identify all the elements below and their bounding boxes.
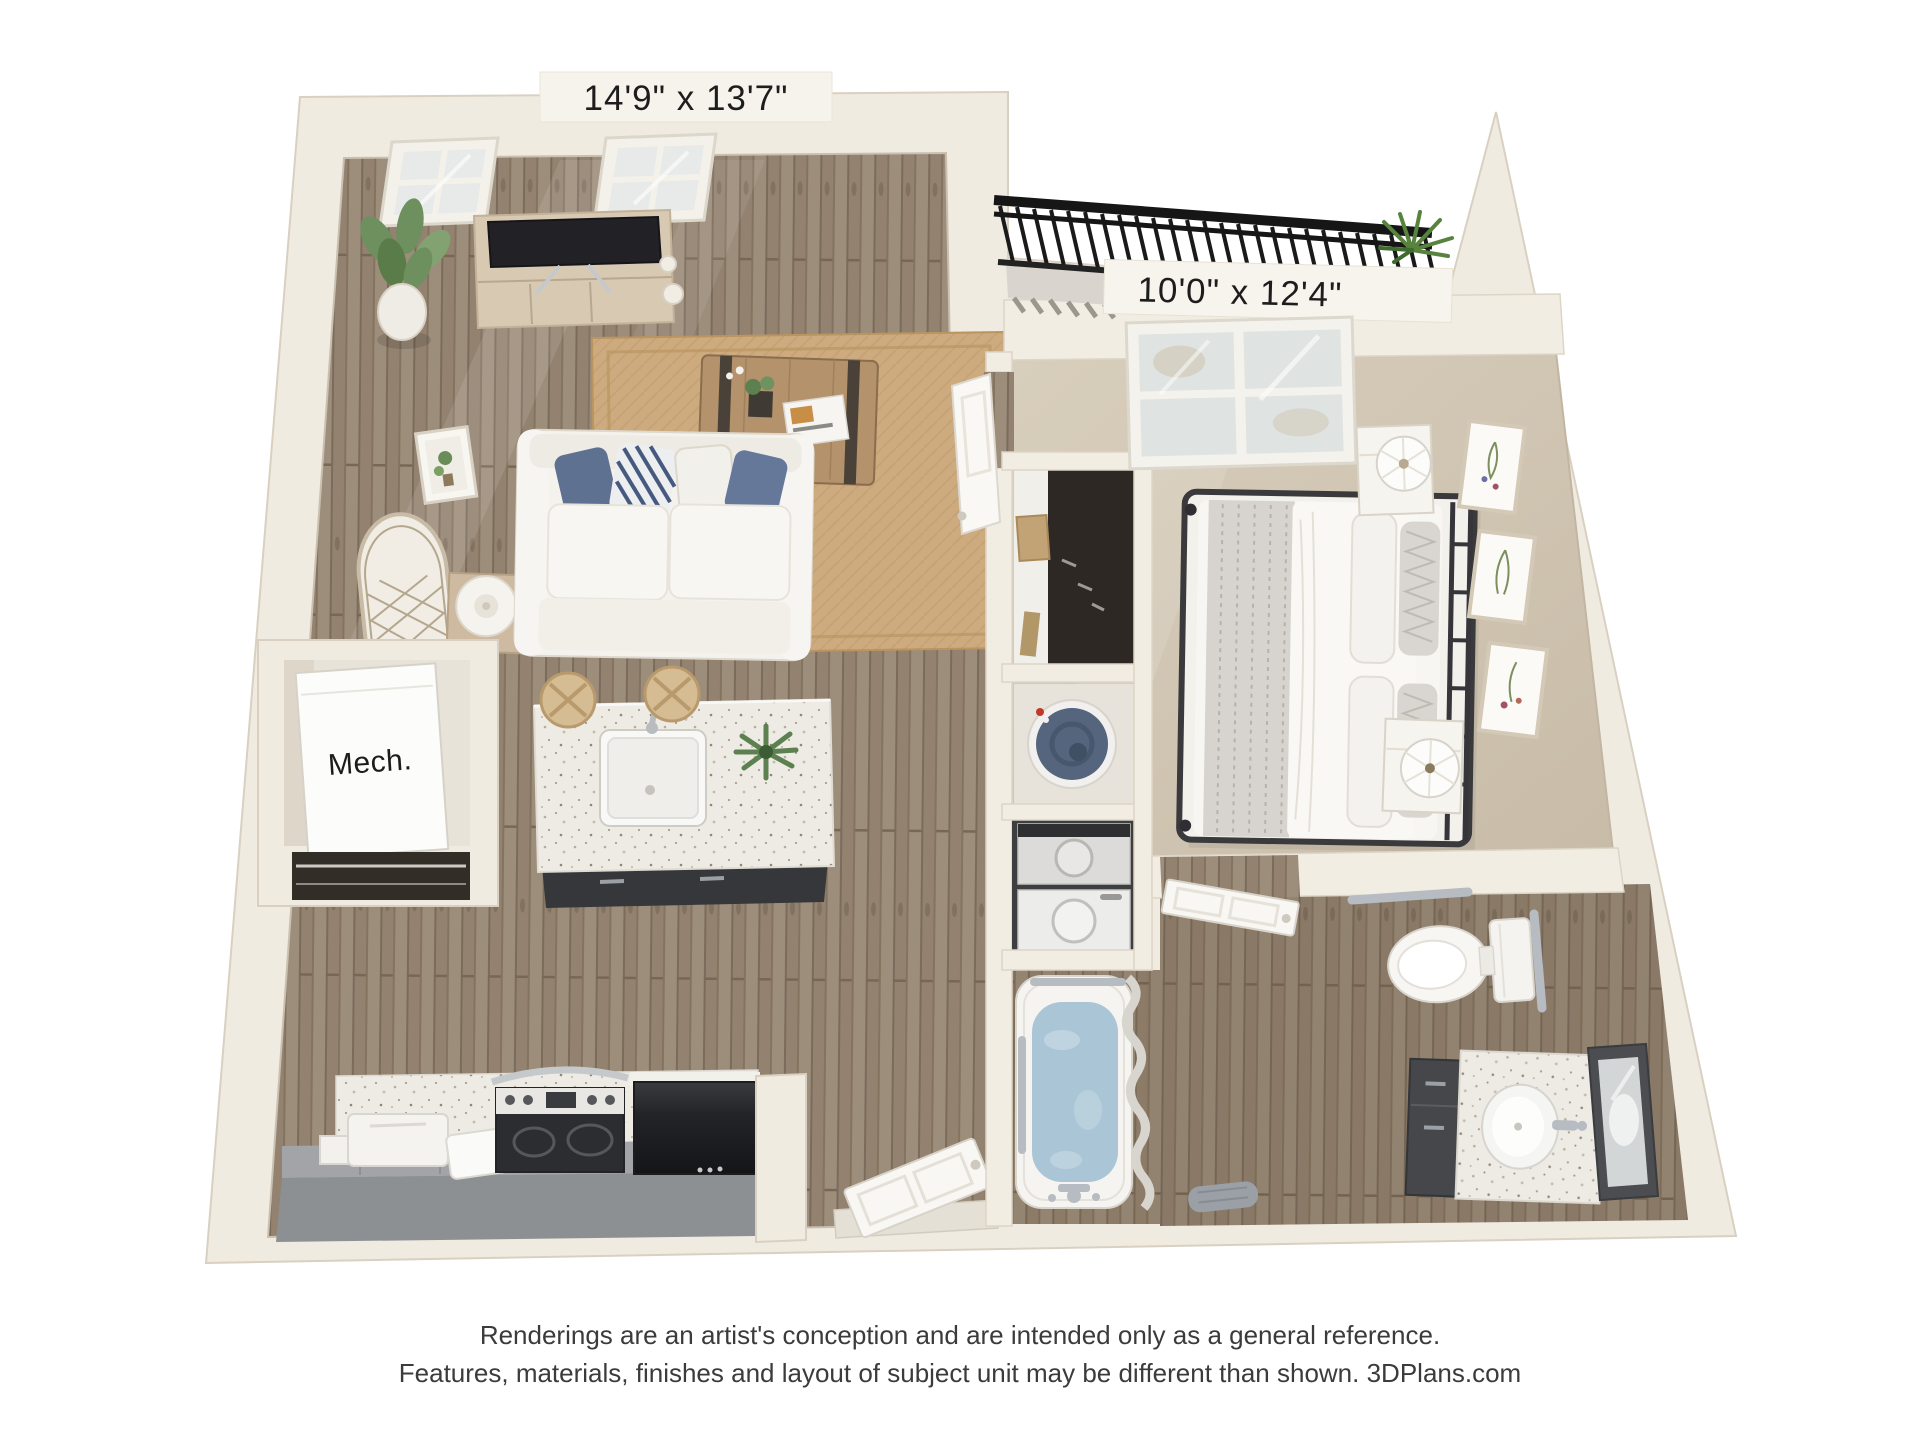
living-room-dimensions-plate: 14'9" x 13'7" [540, 72, 832, 122]
bathtub [1016, 976, 1150, 1208]
nightstand [1382, 719, 1463, 814]
bedroom-dimensions-plate: 10'0" x 12'4" [1103, 259, 1452, 322]
tv-console [474, 210, 683, 328]
wall-art-botanical [1469, 531, 1535, 623]
stacked-washer-dryer [1012, 820, 1136, 956]
nightstand [1356, 425, 1433, 516]
kitchen-entry-wall-stub [756, 1074, 806, 1242]
leaning-mirror [1588, 1044, 1658, 1200]
wall-art-botanical [1459, 421, 1525, 513]
mech-label: Mech. [327, 743, 413, 782]
bar-stool [541, 673, 595, 727]
bedside-lamp [1400, 738, 1460, 798]
bedside-lamp [1376, 436, 1432, 492]
living-room-dimensions-label: 14'9" x 13'7" [584, 79, 789, 118]
mechanical-unit: Mech. [296, 663, 449, 858]
disclaimer-line-2: Features, materials, finishes and layout… [399, 1358, 1521, 1388]
bedroom-west-wall [986, 352, 1012, 372]
bar-stool [645, 667, 699, 721]
wall-art-frame [416, 427, 477, 504]
wall-art-botanical [1479, 643, 1547, 737]
closet-column-wall [1002, 950, 1152, 970]
closet-column-wall [1134, 452, 1152, 970]
closet-column-wall [1002, 804, 1152, 820]
black-appliance [630, 1072, 760, 1174]
water-heater-closet [1014, 684, 1134, 804]
bed-pillow-white [1350, 512, 1397, 663]
storage-box [1017, 515, 1050, 561]
table-lamp [455, 575, 517, 637]
bedroom-window [1126, 317, 1356, 469]
sofa [514, 429, 814, 660]
floor-plan-canvas: Mech. [0, 0, 1920, 1440]
closet-column-wall [1002, 664, 1152, 682]
bathroom-vanity [1406, 1049, 1605, 1204]
mechanical-closet: Mech. [258, 640, 498, 906]
pantry-closet [292, 852, 470, 900]
floor-plan-rendering: Mech. [0, 0, 1920, 1440]
decor-vase [663, 284, 683, 304]
bed-blanket-patterned [1203, 500, 1295, 837]
living-room-window [380, 138, 498, 226]
bedroom-dimensions-label: 10'0" x 12'4" [1137, 270, 1343, 314]
kitchen-island [534, 700, 834, 908]
kitchen-counter-run [276, 1070, 760, 1242]
disclaimer-line-1: Renderings are an artist's conception an… [480, 1320, 1440, 1350]
bedroom-west-wall [986, 468, 1012, 1226]
decor-vase [660, 256, 676, 272]
bedroom-closet [1014, 470, 1134, 666]
